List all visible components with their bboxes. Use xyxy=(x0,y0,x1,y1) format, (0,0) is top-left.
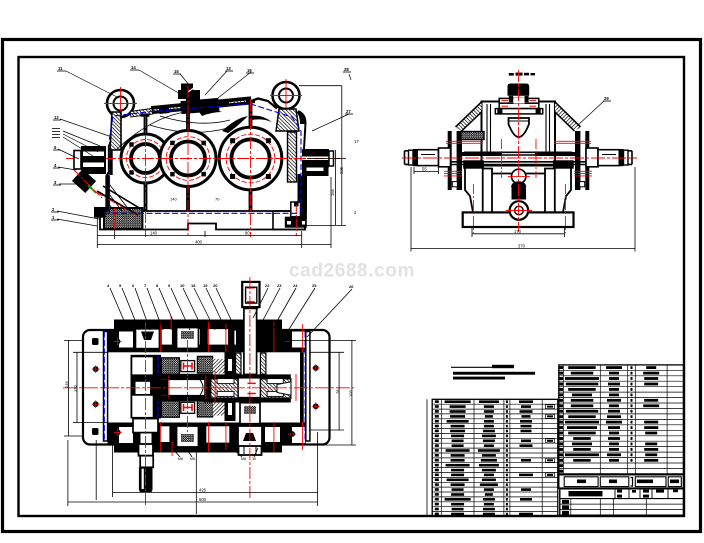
svg-text:23: 23 xyxy=(277,283,282,288)
svg-text:105: 105 xyxy=(348,390,353,397)
svg-text:426: 426 xyxy=(199,488,207,493)
svg-text:90: 90 xyxy=(245,231,250,236)
svg-text:140: 140 xyxy=(170,197,177,202)
svg-text:16: 16 xyxy=(247,68,252,73)
svg-text:140: 140 xyxy=(150,231,158,236)
svg-text:10: 10 xyxy=(180,283,185,288)
svg-text:26: 26 xyxy=(349,284,354,289)
svg-text:M8: M8 xyxy=(178,457,183,461)
svg-text:12: 12 xyxy=(54,115,59,120)
svg-text:20: 20 xyxy=(213,283,218,288)
svg-text:cad2688.com: cad2688.com xyxy=(289,261,415,282)
svg-text:28: 28 xyxy=(344,67,349,72)
svg-text:236: 236 xyxy=(64,381,69,388)
svg-text:27: 27 xyxy=(346,109,351,114)
svg-text:14: 14 xyxy=(131,65,136,70)
svg-text:170: 170 xyxy=(73,385,78,392)
svg-text:30: 30 xyxy=(252,457,256,461)
svg-text:70: 70 xyxy=(215,197,220,202)
svg-text:22: 22 xyxy=(265,283,270,288)
svg-text:17: 17 xyxy=(354,139,359,144)
svg-text:170: 170 xyxy=(514,229,522,234)
svg-text:370: 370 xyxy=(518,244,526,249)
svg-text:500: 500 xyxy=(199,497,207,502)
svg-text:225: 225 xyxy=(339,166,344,174)
svg-text:15: 15 xyxy=(174,69,179,74)
svg-text:18: 18 xyxy=(191,283,196,288)
svg-text:24: 24 xyxy=(293,283,298,288)
svg-text:25: 25 xyxy=(312,283,317,288)
svg-text:29: 29 xyxy=(604,96,609,101)
svg-text:165: 165 xyxy=(330,188,335,196)
svg-text:400: 400 xyxy=(195,240,203,245)
svg-text:11: 11 xyxy=(58,66,63,71)
svg-text:19: 19 xyxy=(203,283,208,288)
svg-text:M8: M8 xyxy=(241,457,246,461)
svg-text:13: 13 xyxy=(226,66,231,71)
svg-text:78: 78 xyxy=(335,389,340,394)
svg-text:M6: M6 xyxy=(190,457,195,461)
svg-text:55: 55 xyxy=(422,167,427,172)
